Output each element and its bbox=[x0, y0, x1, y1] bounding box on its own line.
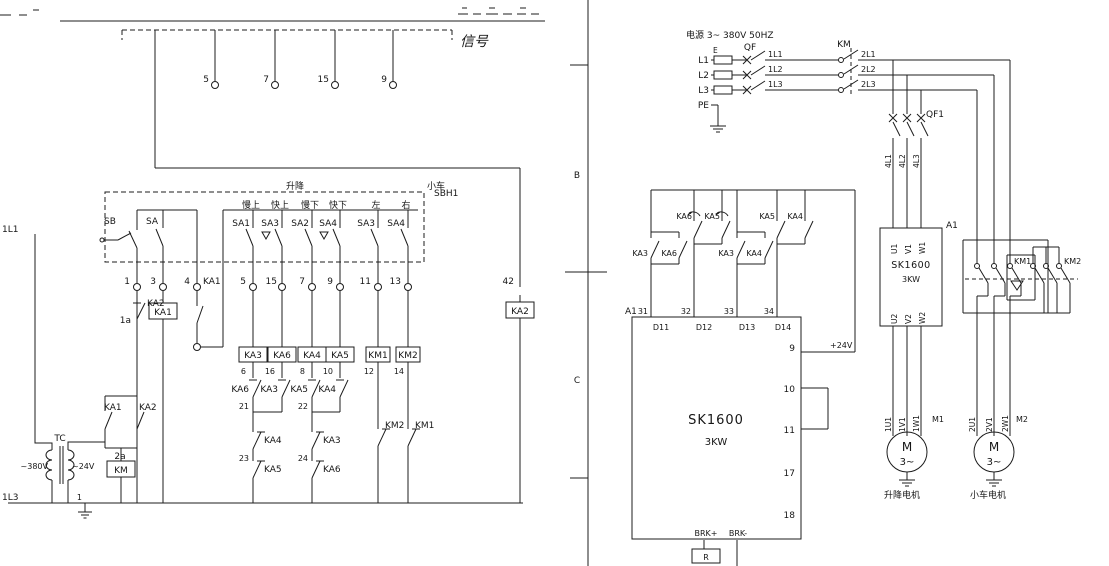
pin-label: D11 bbox=[653, 323, 669, 332]
contact-label: KA4 bbox=[787, 212, 803, 221]
resistor-label: R bbox=[703, 553, 709, 562]
terminal-circle bbox=[212, 82, 219, 89]
pin-label: 17 bbox=[784, 469, 795, 479]
coil-label: KM1 bbox=[368, 351, 387, 361]
pendant-group-label: 升降 bbox=[286, 180, 304, 192]
supply-caption: 电源 3~ 380V 50HZ bbox=[686, 29, 774, 41]
contact-label: KA6 bbox=[676, 212, 692, 221]
phase-label: L1 bbox=[698, 56, 709, 66]
motor-id: M1 bbox=[932, 415, 944, 424]
terminal-number: 9 bbox=[327, 277, 333, 287]
coil-label: KA6 bbox=[273, 351, 291, 361]
pin-label: 18 bbox=[784, 511, 796, 521]
wire-label: 1L3 bbox=[768, 80, 783, 89]
terminal-label: V2 bbox=[904, 314, 913, 324]
linkage-triangle-icon bbox=[262, 232, 328, 239]
contact-label: KA3 bbox=[718, 249, 734, 258]
wire-label: 1L3 bbox=[2, 493, 18, 503]
function-label: 慢上 bbox=[242, 199, 260, 211]
supply-label: +24V bbox=[830, 341, 853, 350]
contact-label: KA5 bbox=[759, 212, 775, 221]
inverter-rating: 3KW bbox=[902, 275, 920, 284]
coil-label: KM bbox=[114, 466, 128, 476]
signal-unit: 信号 5 7 15 9 bbox=[122, 30, 520, 287]
inverter-unit: A1 U1 V1 W1 SK1600 3KW U2 V2 W2 bbox=[880, 221, 958, 436]
sheet-border: B C bbox=[565, 0, 607, 566]
terminal-circle bbox=[160, 284, 167, 291]
wire-number: 22 bbox=[298, 402, 308, 411]
contact-label: KA5 bbox=[704, 212, 720, 221]
motor-caption: 小车电机 bbox=[970, 489, 1006, 501]
wire-number: 12 bbox=[364, 367, 374, 376]
terminal-circle bbox=[337, 284, 344, 291]
wire-number: 10 bbox=[323, 367, 333, 376]
sheet-edge-decoration bbox=[0, 8, 545, 21]
nc-contact-label: KM1 bbox=[415, 421, 434, 431]
terminal-number: 5 bbox=[240, 277, 246, 287]
switch-label: SA4 bbox=[387, 219, 405, 229]
pin-label: 10 bbox=[784, 385, 796, 395]
control-transformer: TC ~380V ~24V 1L1 1L3 1 bbox=[2, 225, 105, 518]
wire-number: 23 bbox=[239, 454, 249, 463]
power-supply-section: 电源 3~ 380V 50HZ L1 L2 L3 PE E QF 1L1 1L2… bbox=[686, 29, 1010, 228]
nc-contact-label: KA6 bbox=[323, 465, 341, 475]
coil-label: KA5 bbox=[331, 351, 349, 361]
nc-contact-label: KA5 bbox=[264, 465, 282, 475]
terminal-label: U1 bbox=[890, 244, 899, 254]
coil-label: KA1 bbox=[154, 308, 172, 318]
contact-label: KA6 bbox=[661, 249, 677, 258]
signal-caption: 信号 bbox=[460, 34, 489, 50]
contactor-contact bbox=[1008, 264, 1013, 269]
nc-contact-label: KA5 bbox=[290, 385, 308, 395]
wire-number: 1a bbox=[120, 316, 131, 326]
terminal-number: 1 bbox=[124, 277, 130, 287]
nc-contact-label: KA3 bbox=[260, 385, 278, 395]
terminal-number: 42 bbox=[503, 277, 514, 287]
no-contact-label: KA1 bbox=[104, 403, 122, 413]
phase-label: L2 bbox=[698, 71, 709, 81]
nc-contact-label: KA4 bbox=[318, 385, 336, 395]
no-contact-label: KA2 bbox=[139, 403, 157, 413]
pendant-group-label: 小车 bbox=[427, 180, 445, 192]
switch-label: SA4 bbox=[319, 219, 337, 229]
coil-label: KM2 bbox=[398, 351, 417, 361]
function-label: 右 bbox=[401, 199, 410, 211]
switch-label: SA2 bbox=[291, 219, 309, 229]
terminal-circle bbox=[405, 284, 412, 291]
terminal-label: W1 bbox=[918, 242, 927, 254]
motor-letter: M bbox=[902, 440, 912, 454]
controller-unit: D11 D12 D13 D14 9 10 11 17 18 +24V SK160… bbox=[632, 317, 853, 566]
function-label: 快上 bbox=[271, 199, 289, 211]
wire-label: 1L1 bbox=[768, 50, 783, 59]
motor-selector-contactors: KM1 KM2 bbox=[963, 60, 1081, 436]
switch-label: SA bbox=[146, 217, 159, 227]
winding-voltage: ~24V bbox=[72, 462, 95, 471]
terminal-label: V1 bbox=[904, 244, 913, 254]
phase-label: PE bbox=[698, 101, 709, 111]
contactor-label: KM bbox=[837, 40, 851, 50]
function-label: 快下 bbox=[329, 199, 347, 211]
brake-pin-label: BRK+ bbox=[695, 529, 718, 538]
terminal-number: 34 bbox=[764, 307, 774, 316]
phase-label: L3 bbox=[698, 86, 709, 96]
motor-phases: 3~ bbox=[987, 457, 1002, 468]
terminal-number: 13 bbox=[390, 277, 401, 287]
pin-label: 9 bbox=[789, 344, 795, 354]
contact-label: KA4 bbox=[746, 249, 762, 258]
transformer-id: TC bbox=[53, 434, 65, 444]
signal-terminal: 15 bbox=[318, 75, 329, 85]
function-label: 左 bbox=[371, 199, 380, 211]
contactor-label: KM2 bbox=[1064, 257, 1081, 266]
function-label: 慢下 bbox=[301, 199, 319, 211]
wire-label: 4L3 bbox=[912, 154, 921, 168]
terminal-number: 4 bbox=[184, 277, 190, 287]
terminal-label: U2 bbox=[890, 314, 899, 324]
controller-model: SK1600 bbox=[688, 413, 744, 428]
motor-letter: M bbox=[989, 440, 999, 454]
terminal-number: 32 bbox=[681, 307, 691, 316]
terminal-circle bbox=[250, 284, 257, 291]
motor-caption: 升降电机 bbox=[884, 489, 920, 501]
terminal-circle bbox=[194, 344, 201, 351]
switch-label: SA3 bbox=[261, 219, 279, 229]
terminal-circle bbox=[279, 284, 286, 291]
coil-label: KA3 bbox=[244, 351, 262, 361]
wire-label: 1V1 bbox=[898, 417, 907, 432]
wire-number: 1 bbox=[77, 493, 82, 502]
nc-contact-label: KA4 bbox=[264, 436, 282, 446]
wire-label: 2L1 bbox=[861, 50, 876, 59]
contactor-contact bbox=[1057, 264, 1062, 269]
coil-label: KA2 bbox=[511, 307, 529, 317]
schematic-page: 信号 5 7 15 9 SBH1 升降 小车 慢上 快上 慢下 快下 左 右 S… bbox=[0, 0, 1109, 566]
switch-label: SA3 bbox=[357, 219, 375, 229]
terminal-circle bbox=[194, 284, 201, 291]
contactor-contact bbox=[992, 264, 997, 269]
wire-label: 1L1 bbox=[2, 225, 18, 235]
pushbutton-head bbox=[100, 238, 104, 242]
controller-rating: 3KW bbox=[705, 437, 728, 448]
pin-label: 11 bbox=[784, 426, 795, 436]
nc-contact-label: KA6 bbox=[231, 385, 249, 395]
contact-label: KA3 bbox=[632, 249, 648, 258]
wire-label: 2U1 bbox=[968, 417, 977, 432]
terminal-number: 3 bbox=[150, 277, 156, 287]
terminal-number: 15 bbox=[266, 277, 277, 287]
terminal-circle bbox=[134, 284, 141, 291]
switch-label: SA1 bbox=[232, 219, 250, 229]
terminal-circle bbox=[390, 82, 397, 89]
wire-label: 1W1 bbox=[912, 415, 921, 432]
switch-label: SB bbox=[104, 217, 116, 227]
contactor-contact bbox=[975, 264, 980, 269]
signal-terminal: 7 bbox=[263, 75, 269, 85]
terminal-mark: E bbox=[713, 46, 718, 55]
wire-label: 1U1 bbox=[884, 417, 893, 432]
terminal-number: 11 bbox=[360, 277, 371, 287]
terminal-number: 33 bbox=[724, 307, 734, 316]
terminal-circle bbox=[272, 82, 279, 89]
zone-letter: C bbox=[574, 376, 580, 386]
terminal-circle bbox=[309, 284, 316, 291]
winding-voltage: ~380V bbox=[21, 462, 49, 471]
no-contact-label: KA1 bbox=[203, 277, 221, 287]
device-id: A1 bbox=[946, 221, 958, 231]
wire-number: 6 bbox=[241, 367, 246, 376]
wire-label: 2L3 bbox=[861, 80, 876, 89]
pin-label: D13 bbox=[739, 323, 755, 332]
control-ladder: KA2 1a KA1 KA2 2a KM KA1 KA1 KA3 KA6 KA4… bbox=[8, 210, 534, 503]
wire-number: 16 bbox=[265, 367, 275, 376]
wire-number: 24 bbox=[298, 454, 308, 463]
terminal-label: W2 bbox=[918, 312, 927, 324]
pin-label: D12 bbox=[696, 323, 712, 332]
nc-contact-label: KA3 bbox=[323, 436, 341, 446]
wire-number: 8 bbox=[300, 367, 305, 376]
breaker-label: QF bbox=[744, 43, 756, 53]
schematic-canvas: 信号 5 7 15 9 SBH1 升降 小车 慢上 快上 慢下 快下 左 右 S… bbox=[0, 0, 1109, 566]
terminal-circle bbox=[375, 284, 382, 291]
wire-label: 2V1 bbox=[985, 417, 994, 432]
wire-label: 2W1 bbox=[1001, 415, 1010, 432]
signal-terminal: 5 bbox=[203, 75, 209, 85]
wire-number: 21 bbox=[239, 402, 249, 411]
motor-phases: 3~ bbox=[900, 457, 915, 468]
contactor-contact bbox=[839, 88, 844, 93]
coil-label: KA4 bbox=[303, 351, 321, 361]
zone-letter: B bbox=[574, 171, 580, 181]
terminal-number: 7 bbox=[299, 277, 305, 287]
terminal-circle bbox=[332, 82, 339, 89]
pendant-station: SBH1 升降 小车 慢上 快上 慢下 快下 左 右 SB SA SA1 SA3… bbox=[100, 180, 458, 291]
inverter-model: SK1600 bbox=[891, 260, 930, 271]
wire-label: 1L2 bbox=[768, 65, 783, 74]
signal-terminal: 9 bbox=[381, 75, 387, 85]
brake-pin-label: BRK- bbox=[729, 529, 747, 538]
wire-label: 4L1 bbox=[884, 154, 893, 168]
wire-number: 14 bbox=[394, 367, 404, 376]
contactor-contact bbox=[839, 58, 844, 63]
wire-label: 2L2 bbox=[861, 65, 876, 74]
board-id: A1 bbox=[625, 307, 637, 317]
nc-contact-label: KM2 bbox=[385, 421, 404, 431]
breaker-label: QF1 bbox=[926, 110, 944, 120]
contactor-label: KM1 bbox=[1014, 257, 1031, 266]
contactor-contact bbox=[839, 73, 844, 78]
pin-label: D14 bbox=[775, 323, 791, 332]
terminal-number: 31 bbox=[638, 307, 648, 316]
wire-label: 4L2 bbox=[898, 154, 907, 168]
motor-id: M2 bbox=[1016, 415, 1028, 424]
